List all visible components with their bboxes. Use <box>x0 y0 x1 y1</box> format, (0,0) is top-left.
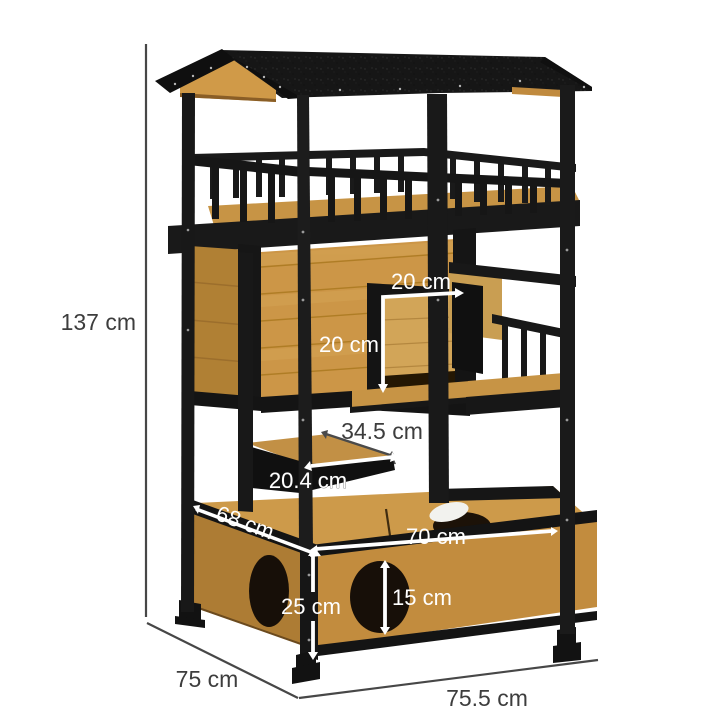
svg-text:75 cm: 75 cm <box>176 666 239 692</box>
svg-text:20 cm: 20 cm <box>391 269 451 294</box>
svg-text:70 cm: 70 cm <box>406 524 466 549</box>
svg-text:137 cm: 137 cm <box>61 309 136 335</box>
svg-text:15 cm: 15 cm <box>392 585 452 610</box>
svg-text:20.4 cm: 20.4 cm <box>269 468 347 493</box>
svg-text:25 cm: 25 cm <box>281 594 341 619</box>
svg-text:75.5 cm: 75.5 cm <box>446 685 528 711</box>
svg-text:34.5 cm: 34.5 cm <box>341 418 423 444</box>
svg-text:20 cm: 20 cm <box>319 332 379 357</box>
